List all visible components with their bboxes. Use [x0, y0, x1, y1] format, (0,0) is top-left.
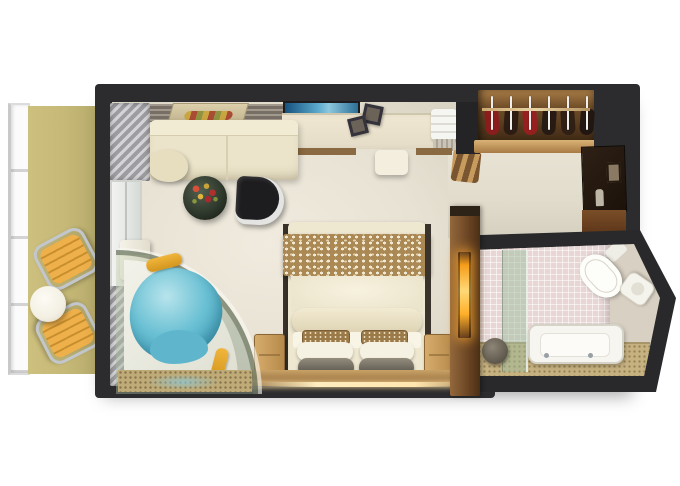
clothes-hanger: [560, 96, 576, 140]
clothes-hanger: [522, 96, 538, 140]
bathtub: [528, 324, 624, 364]
hanger-stem: [567, 96, 569, 130]
sofa-backrest: [150, 120, 298, 136]
bed-throw: [283, 234, 431, 276]
clothes-hanger: [503, 96, 519, 140]
armchair-seat: [235, 176, 280, 221]
minibar-cabinet: [581, 145, 627, 212]
sofa-cushion-seam: [226, 136, 228, 180]
bed-duvet-fold: [291, 276, 423, 312]
hanger-stem: [586, 96, 588, 130]
clothes-hanger: [484, 96, 500, 140]
desk-stool: [375, 150, 408, 175]
bath-stool: [482, 338, 508, 364]
fruit-tray: [183, 111, 234, 120]
bathtub-basin: [540, 333, 610, 357]
accent-lamp: [458, 252, 471, 338]
flower-bowl: [190, 181, 220, 207]
clothes-hanger: [541, 96, 557, 140]
hanger-stem: [510, 96, 512, 130]
floor-reflection: [146, 374, 220, 390]
hanger-stem: [491, 96, 493, 130]
faucet: [544, 353, 549, 358]
bottle: [595, 189, 604, 206]
balcony-table: [30, 286, 66, 322]
clothes-hanger: [579, 96, 595, 140]
cabinet-frame: [606, 162, 621, 182]
wardrobe-rod: [482, 108, 590, 111]
hanger-row: [478, 90, 596, 142]
faucet: [588, 353, 593, 358]
stateroom-floorplan: [0, 0, 680, 486]
hanger-stem: [529, 96, 531, 130]
coffee-table: [183, 176, 227, 220]
hanger-stem: [548, 96, 550, 130]
headboard-wall-cap: [450, 206, 480, 216]
headboard-wall: [450, 206, 480, 396]
wardrobe-frame: [474, 140, 598, 153]
sofa-chaise: [150, 120, 298, 180]
curtain: [110, 103, 150, 181]
sofa-armrest: [148, 150, 188, 182]
bathroom: [448, 226, 680, 396]
towel: [431, 109, 457, 140]
double-bed: [283, 220, 431, 378]
wardrobe: [478, 90, 596, 142]
desk-drawer: [416, 148, 452, 155]
balcony-railing: [8, 103, 30, 375]
